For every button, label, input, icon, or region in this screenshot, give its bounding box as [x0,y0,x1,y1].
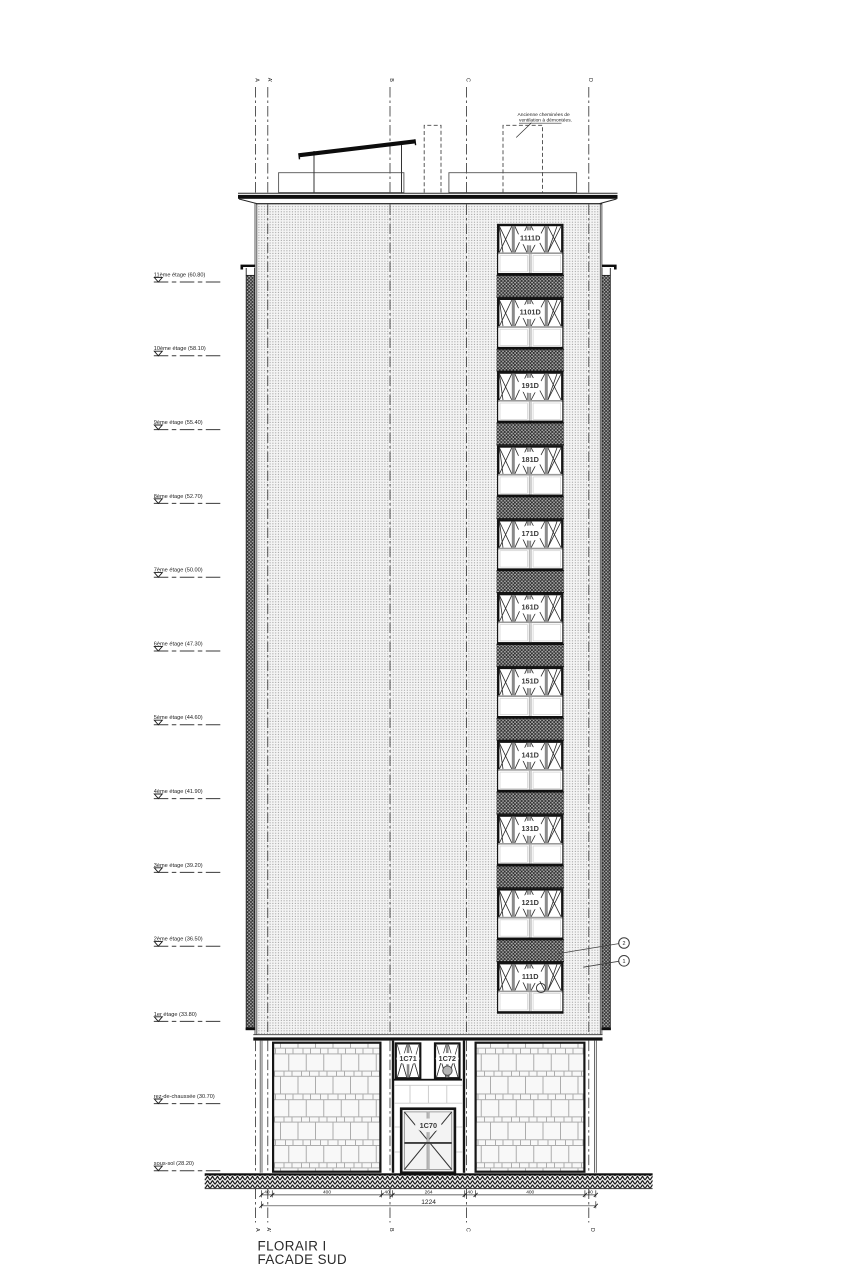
svg-text:111D: 111D [522,972,539,981]
svg-text:D: D [589,1228,595,1232]
svg-text:rez-de-chaussée (30.70): rez-de-chaussée (30.70) [154,1094,215,1100]
svg-text:1C72: 1C72 [439,1054,456,1063]
svg-text:1224: 1224 [421,1199,436,1206]
svg-text:121D: 121D [521,898,538,907]
svg-text:B: B [388,78,394,82]
svg-text:141D: 141D [521,750,538,759]
svg-text:40: 40 [588,1190,594,1196]
svg-text:ventilation à démontées.: ventilation à démontées. [519,118,572,124]
svg-text:2: 2 [623,941,626,947]
svg-text:40: 40 [384,1190,390,1196]
svg-text:A': A' [265,1227,271,1232]
svg-text:A: A [254,1228,260,1232]
svg-text:B: B [388,1228,394,1232]
svg-text:151D: 151D [521,677,538,686]
svg-text:C: C [464,1228,470,1232]
svg-text:400: 400 [526,1190,534,1196]
svg-text:40: 40 [264,1190,270,1196]
svg-text:161D: 161D [521,603,538,612]
svg-text:1: 1 [623,959,626,965]
svg-text:264: 264 [425,1190,433,1196]
svg-text:FACADE SUD: FACADE SUD [258,1252,348,1267]
svg-text:A': A' [266,78,272,83]
svg-text:191D: 191D [521,381,538,390]
svg-text:D: D [587,78,593,82]
svg-text:C: C [464,78,470,82]
svg-text:1111D: 1111D [520,234,540,243]
svg-text:A: A [254,78,260,82]
svg-text:171D: 171D [521,529,538,538]
svg-text:400: 400 [323,1190,331,1196]
svg-text:1101D: 1101D [520,307,541,316]
svg-text:1C71: 1C71 [399,1054,416,1063]
svg-text:Ancienne cheminées de: Ancienne cheminées de [518,112,570,118]
svg-text:131D: 131D [521,824,538,833]
svg-text:40: 40 [467,1190,473,1196]
svg-text:1C70: 1C70 [420,1121,437,1130]
svg-text:181D: 181D [521,455,538,464]
